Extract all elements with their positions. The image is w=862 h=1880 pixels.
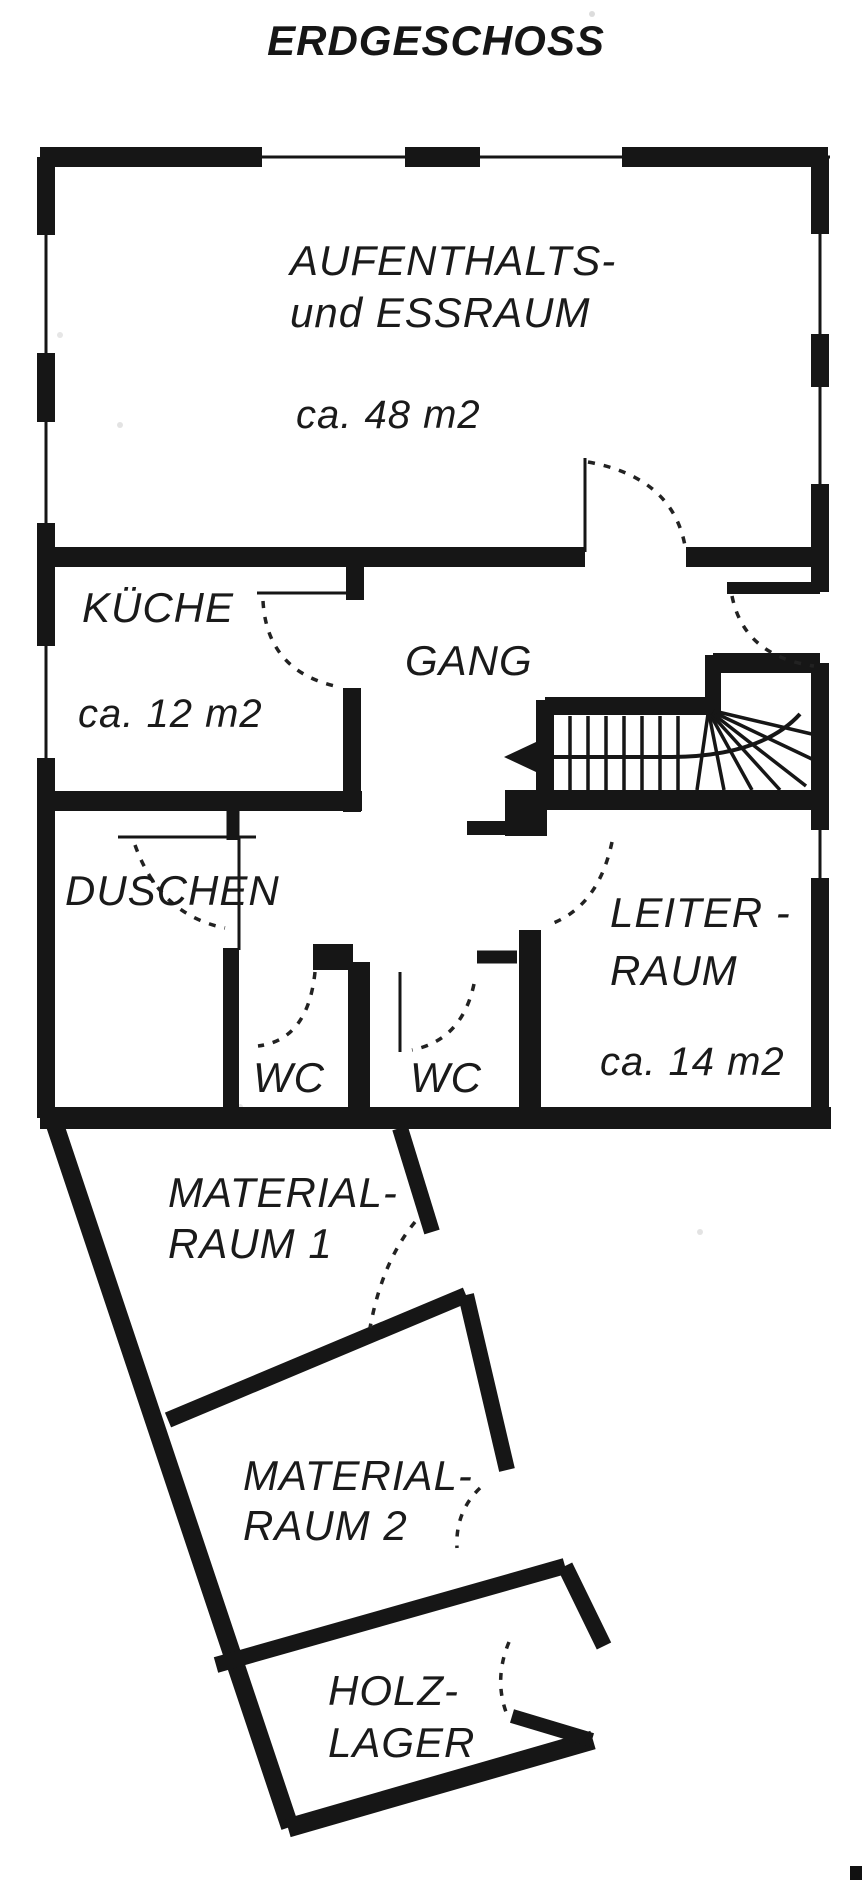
- door-arc-holzlager: [501, 1642, 509, 1712]
- room-label-materialraum-1-line2: RAUM 1: [168, 1220, 333, 1267]
- erdgeschoss-floor-plan: ERDGESCHOSS AUFENTHALTS- und ESSRAUM ca.…: [0, 0, 862, 1880]
- door-arc-wc-2: [412, 984, 474, 1050]
- area-label-leiterraum: ca. 14 m2: [600, 1040, 785, 1084]
- door-arc-wc-1: [258, 972, 315, 1046]
- room-label-holzlager-line2: LAGER: [328, 1719, 475, 1766]
- door-arc-aufenthaltsraum: [588, 462, 686, 552]
- area-label-aufenthaltsraum: ca. 48 m2: [296, 393, 481, 437]
- room-label-aufenthaltsraum-line1: AUFENTHALTS-: [287, 237, 616, 284]
- room-label-holzlager-line1: HOLZ-: [328, 1667, 459, 1714]
- room-label-duschen: DUSCHEN: [65, 867, 280, 914]
- room-label-wc-2: WC: [410, 1054, 482, 1101]
- room-label-aufenthaltsraum-line2: und ESSRAUM: [290, 289, 590, 336]
- door-arc-kueche: [263, 601, 339, 687]
- room-label-materialraum-2-line2: RAUM 2: [243, 1502, 408, 1549]
- room-label-gang: GANG: [405, 637, 533, 684]
- room-label-leiterraum-line1: LEITER -: [610, 889, 791, 936]
- room-label-leiterraum-line2: RAUM: [610, 947, 738, 994]
- scan-artifact: [850, 1866, 862, 1880]
- room-label-materialraum-2-line1: MATERIAL-: [243, 1452, 473, 1499]
- floor-title: ERDGESCHOSS: [267, 17, 605, 64]
- area-label-kueche: ca. 12 m2: [78, 692, 263, 736]
- stair-direction-arrow: [504, 742, 536, 772]
- room-label-wc-1: WC: [253, 1054, 325, 1101]
- door-arc-leiterraum: [548, 842, 612, 925]
- stair-treads: [570, 711, 816, 790]
- room-label-materialraum-1-line1: MATERIAL-: [168, 1169, 398, 1216]
- room-label-kueche: KÜCHE: [82, 584, 234, 631]
